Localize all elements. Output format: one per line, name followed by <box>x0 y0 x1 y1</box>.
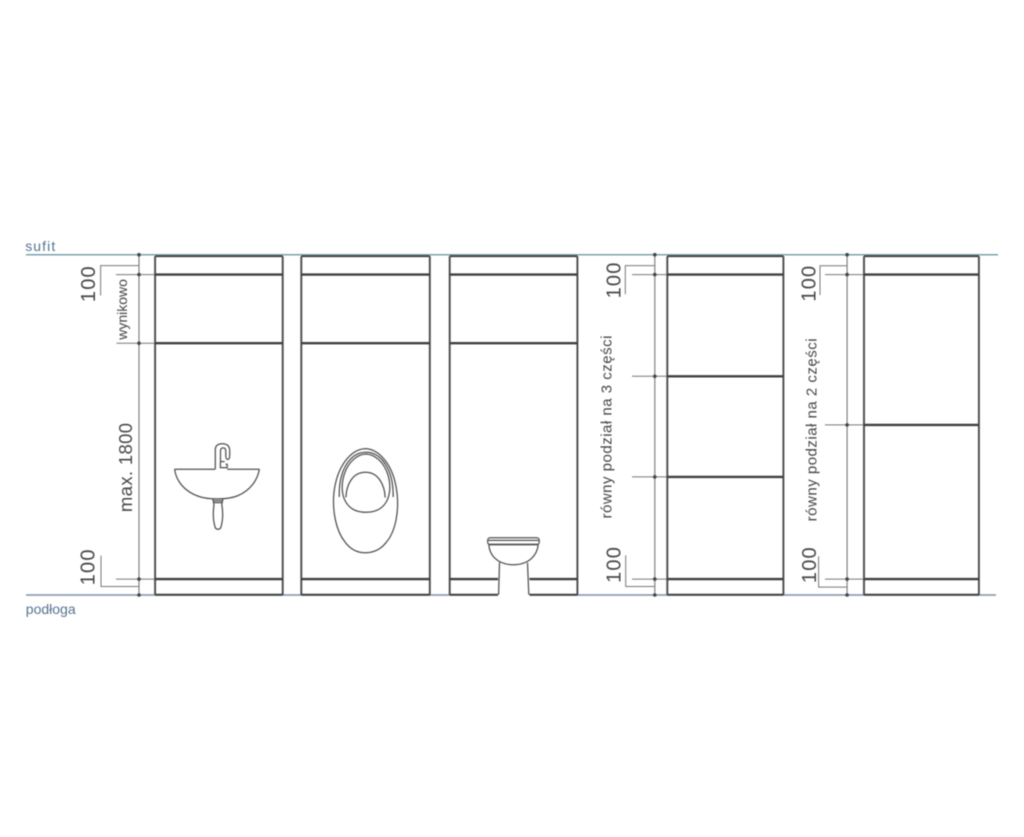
svg-text:100: 100 <box>78 548 100 585</box>
svg-text:max. 1800: max. 1800 <box>115 423 136 513</box>
svg-text:100: 100 <box>799 546 821 583</box>
svg-text:sufit: sufit <box>25 238 56 254</box>
svg-text:100: 100 <box>799 265 821 302</box>
svg-text:100: 100 <box>604 261 626 298</box>
svg-text:podłoga: podłoga <box>26 601 76 617</box>
svg-text:wynikowo: wynikowo <box>114 279 130 341</box>
svg-text:100: 100 <box>78 265 100 302</box>
svg-text:100: 100 <box>604 546 626 583</box>
svg-text:równy podział na 3 części: równy podział na 3 części <box>599 335 616 518</box>
svg-text:równy podział na 2 części: równy podział na 2 części <box>803 338 820 521</box>
